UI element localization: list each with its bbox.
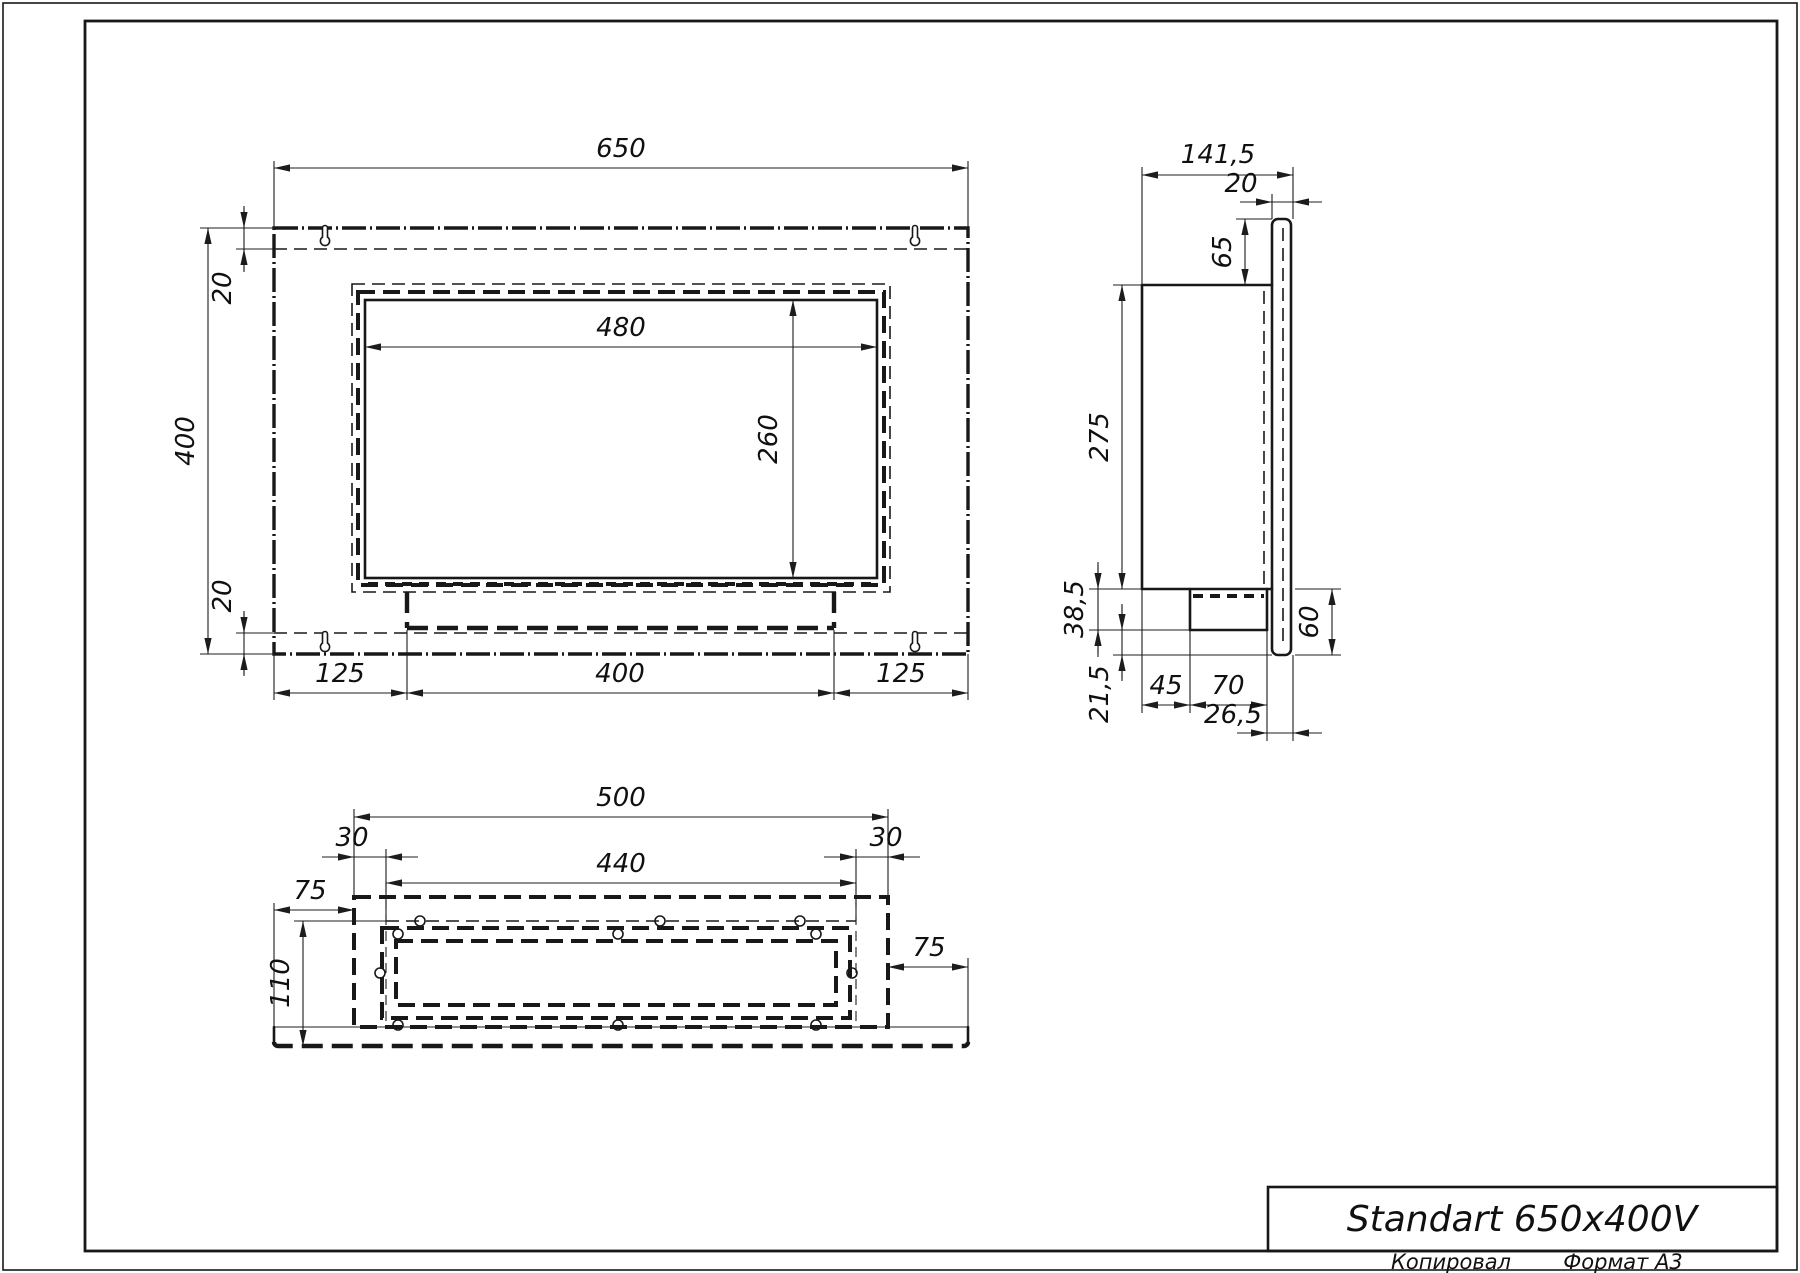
dim-label-65: 65	[1208, 235, 1238, 268]
casing-footprint	[354, 897, 888, 1027]
dim-label-125-left: 125	[315, 659, 365, 689]
dim-label-38-5: 38,5	[1060, 580, 1090, 638]
keyhole-icon	[320, 632, 329, 652]
dim-label-400-bottom: 400	[595, 659, 645, 689]
bottom-view: 500 30 30 440 75 75 110	[266, 783, 968, 1046]
dim-label-60: 60	[1295, 605, 1325, 638]
drawing-sheet: 650 400 20 20 480 260 125 400 125	[0, 0, 1800, 1273]
footer-copied-label: Копировал	[1391, 1250, 1511, 1273]
title-block: Standart 650x400V Копировал Формат А3	[1268, 1187, 1777, 1273]
dim-label-480: 480	[596, 313, 646, 343]
dim-label-75-right: 75	[912, 933, 945, 963]
flange-plate	[1272, 219, 1291, 655]
side-view: 141,5 20 65 275 38,5 21,5 45 70 26,5 60	[1060, 140, 1341, 741]
keyhole-icon	[910, 632, 919, 652]
dim-label-45: 45	[1149, 671, 1182, 701]
page-outer-border	[3, 3, 1797, 1270]
title-block-title: Standart 650x400V	[1347, 1199, 1700, 1240]
dim-label-141-5: 141,5	[1181, 140, 1255, 170]
dim-label-400-height: 400	[171, 416, 201, 466]
dim-label-650: 650	[596, 134, 646, 164]
dim-label-20-top: 20	[208, 271, 238, 304]
drawing-frame	[85, 21, 1777, 1251]
dim-label-26-5: 26,5	[1204, 700, 1262, 730]
dim-label-20-flange: 20	[1224, 169, 1257, 199]
fastener-holes	[375, 916, 857, 1030]
dim-label-440: 440	[596, 849, 646, 879]
dim-label-20-bottom: 20	[208, 579, 238, 612]
dim-label-75-left: 75	[293, 876, 326, 906]
dim-label-275: 275	[1085, 412, 1115, 462]
keyhole-icon	[320, 226, 329, 246]
dim-label-30-left: 30	[335, 823, 368, 853]
drawing-canvas: 650 400 20 20 480 260 125 400 125	[0, 0, 1800, 1273]
dim-label-70: 70	[1211, 671, 1244, 701]
dim-label-125-right: 125	[876, 659, 926, 689]
flange-band-bottom	[274, 1042, 968, 1046]
dim-label-30-right: 30	[869, 823, 902, 853]
dim-label-21-5: 21,5	[1085, 665, 1115, 723]
dim-label-110: 110	[266, 958, 296, 1008]
dim-label-500: 500	[596, 783, 646, 813]
burner-frame-inner	[396, 941, 836, 1005]
dim-label-260: 260	[754, 414, 784, 464]
footer-format-label: Формат А3	[1563, 1250, 1683, 1273]
front-view: 650 400 20 20 480 260 125 400 125	[171, 134, 968, 700]
keyhole-icon	[910, 226, 919, 246]
